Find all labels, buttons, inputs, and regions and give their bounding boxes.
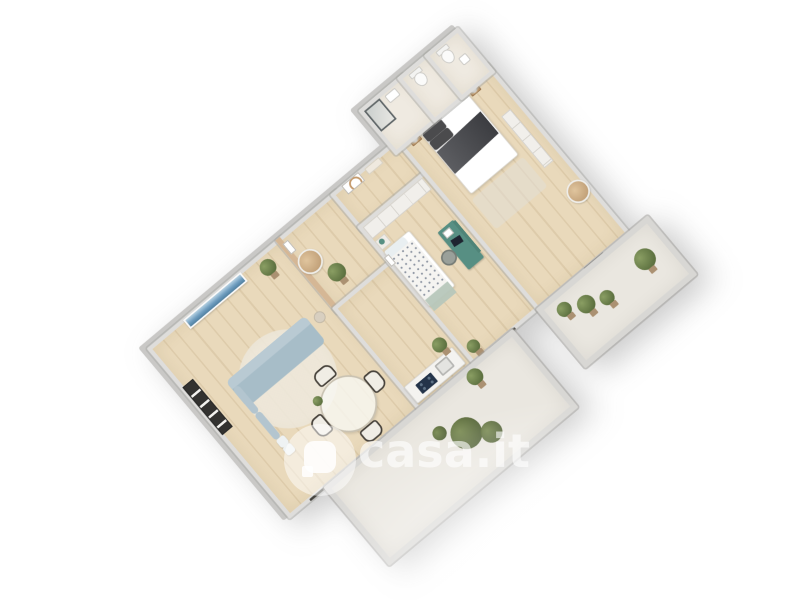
terrace-tree-icon	[463, 365, 487, 389]
round-mirror-icon	[562, 175, 595, 208]
washbasin	[458, 53, 471, 66]
bedroom-plant-icon	[464, 337, 483, 356]
entry-plant-icon	[324, 259, 350, 285]
washbasin	[384, 88, 400, 104]
balcony-plant-icon	[630, 244, 661, 275]
apartment-3d-plan	[15, 0, 781, 600]
balcony-plant-icon	[554, 299, 575, 320]
balcony-plant-icon	[596, 287, 617, 308]
casa-logo-icon	[284, 424, 356, 496]
side-table	[311, 309, 328, 326]
corner-plant-icon	[256, 256, 280, 280]
balcony-plant-icon	[573, 291, 599, 317]
watermark-text: casa.it	[358, 424, 530, 478]
sofa-armrest	[232, 385, 259, 416]
casa-house-glyph-icon	[304, 441, 336, 473]
dark-throw-blanket	[437, 111, 499, 174]
floorplan-render: casa.it	[0, 0, 800, 600]
kitchen-plant-icon	[429, 334, 450, 355]
